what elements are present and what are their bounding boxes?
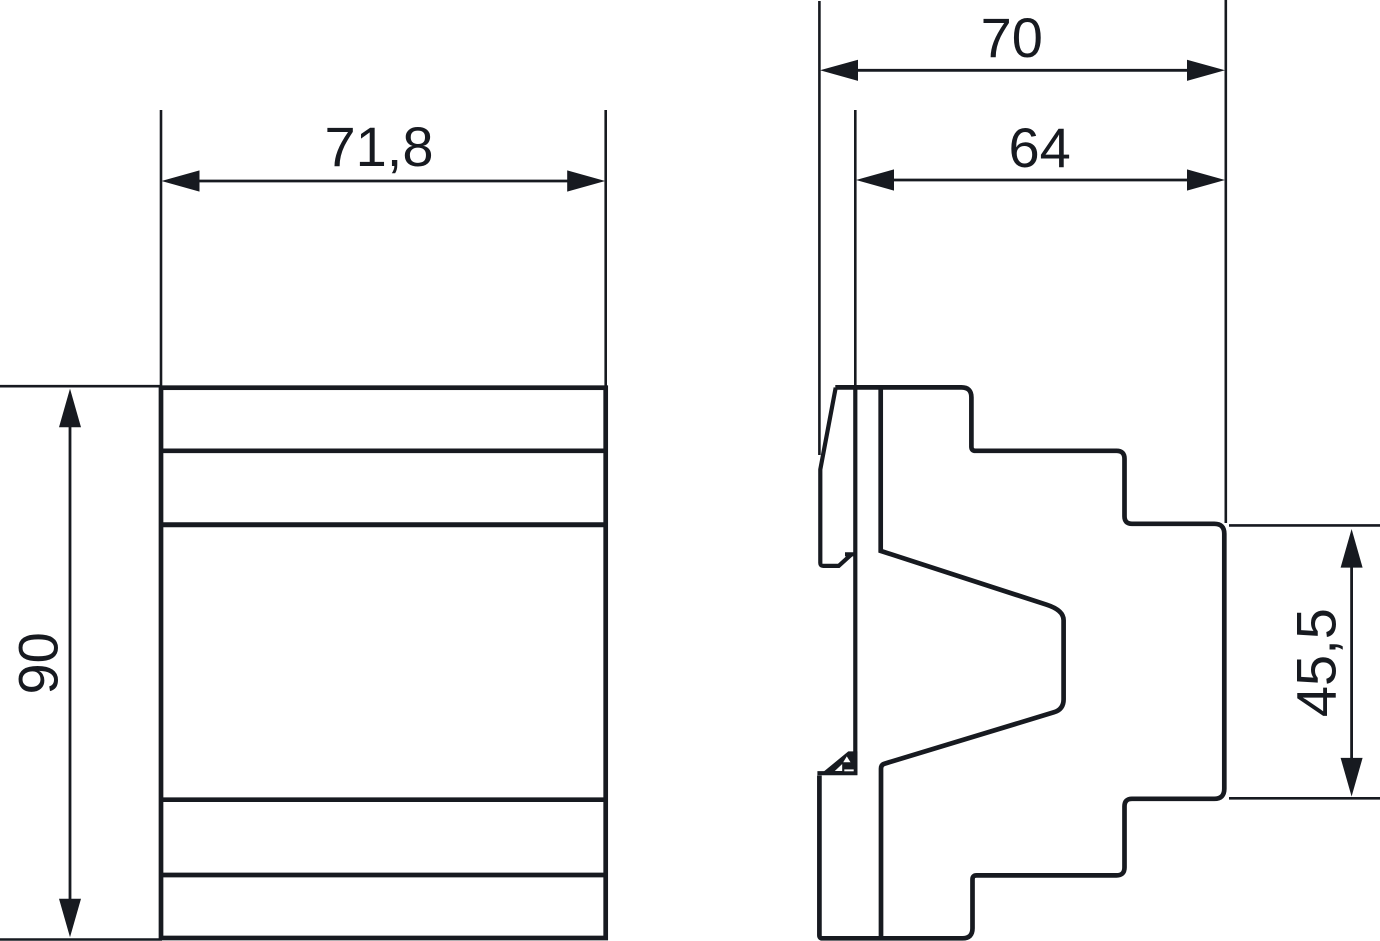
svg-text:64: 64 <box>1008 116 1070 179</box>
svg-text:71,8: 71,8 <box>325 115 434 178</box>
svg-text:70: 70 <box>981 6 1043 69</box>
svg-text:90: 90 <box>7 632 70 694</box>
svg-text:45,5: 45,5 <box>1285 608 1348 717</box>
